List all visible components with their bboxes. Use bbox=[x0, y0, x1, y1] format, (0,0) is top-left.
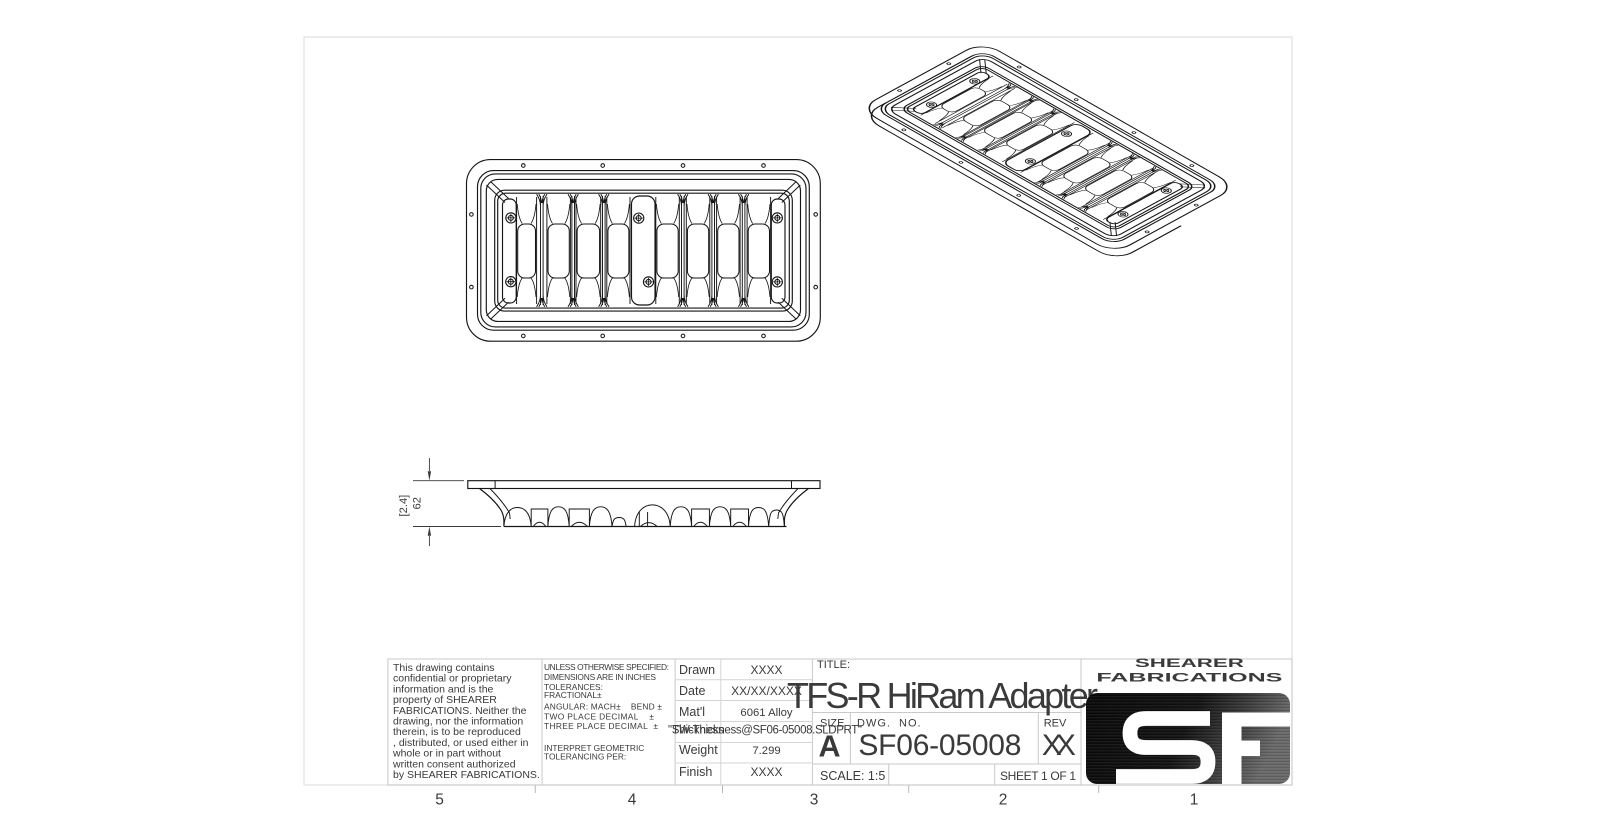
svg-text:7.299: 7.299 bbox=[752, 745, 780, 757]
svg-text:UNLESS OTHERWISE SPECIFIED:: UNLESS OTHERWISE SPECIFIED: bbox=[544, 662, 669, 672]
svg-text:[2.4]: [2.4] bbox=[398, 495, 410, 517]
svg-text:DWG. NO.: DWG. NO. bbox=[857, 717, 922, 729]
svg-text:XXXX: XXXX bbox=[750, 663, 782, 677]
svg-text:SHEARER: SHEARER bbox=[1135, 656, 1245, 670]
svg-text:THREE PLACE DECIMAL ±: THREE PLACE DECIMAL ± bbox=[544, 721, 658, 731]
svg-text:by SHEARER FABRICATIONS.: by SHEARER FABRICATIONS. bbox=[393, 769, 540, 781]
svg-text:SF06-05008: SF06-05008 bbox=[858, 729, 1021, 762]
svg-text:REV: REV bbox=[1044, 717, 1067, 729]
svg-text:5: 5 bbox=[435, 792, 444, 809]
svg-text:Finish: Finish bbox=[679, 765, 712, 779]
svg-text:2: 2 bbox=[999, 792, 1008, 809]
svg-text:4: 4 bbox=[628, 792, 637, 809]
svg-text:Weight: Weight bbox=[679, 743, 718, 757]
svg-text:ANGULAR: MACH± BEND ±: ANGULAR: MACH± BEND ± bbox=[544, 702, 662, 712]
svg-text:62: 62 bbox=[412, 497, 424, 509]
svg-text:SIZE: SIZE bbox=[820, 717, 844, 729]
svg-text:Mat'l: Mat'l bbox=[679, 705, 705, 719]
svg-text:3: 3 bbox=[810, 792, 819, 809]
svg-text:TFS-R HiRam Adapter: TFS-R HiRam Adapter bbox=[787, 675, 1098, 716]
svg-text:FABRICATIONS: FABRICATIONS bbox=[1096, 670, 1282, 684]
svg-text:SCALE: 1:5: SCALE: 1:5 bbox=[820, 769, 885, 783]
svg-text:Date: Date bbox=[679, 684, 705, 698]
svg-text:SHEET 1 OF 1: SHEET 1 OF 1 bbox=[1000, 769, 1076, 783]
svg-text:XX: XX bbox=[1042, 729, 1076, 762]
svg-text:A: A bbox=[818, 730, 840, 764]
svg-text:1: 1 bbox=[1190, 792, 1199, 809]
svg-text:TOLERANCING PER:: TOLERANCING PER: bbox=[544, 752, 626, 762]
svg-text:TITLE:: TITLE: bbox=[817, 659, 850, 671]
svg-text:6061 Alloy: 6061 Alloy bbox=[740, 707, 792, 719]
svg-text:XXXX: XXXX bbox=[750, 765, 782, 779]
svg-text:DIMENSIONS ARE IN INCHES: DIMENSIONS ARE IN INCHES bbox=[544, 672, 656, 682]
svg-text:FRACTIONAL±: FRACTIONAL± bbox=[544, 690, 602, 700]
svg-text:Drawn: Drawn bbox=[679, 663, 715, 677]
svg-text:TWO PLACE DECIMAL ±: TWO PLACE DECIMAL ± bbox=[544, 712, 654, 722]
